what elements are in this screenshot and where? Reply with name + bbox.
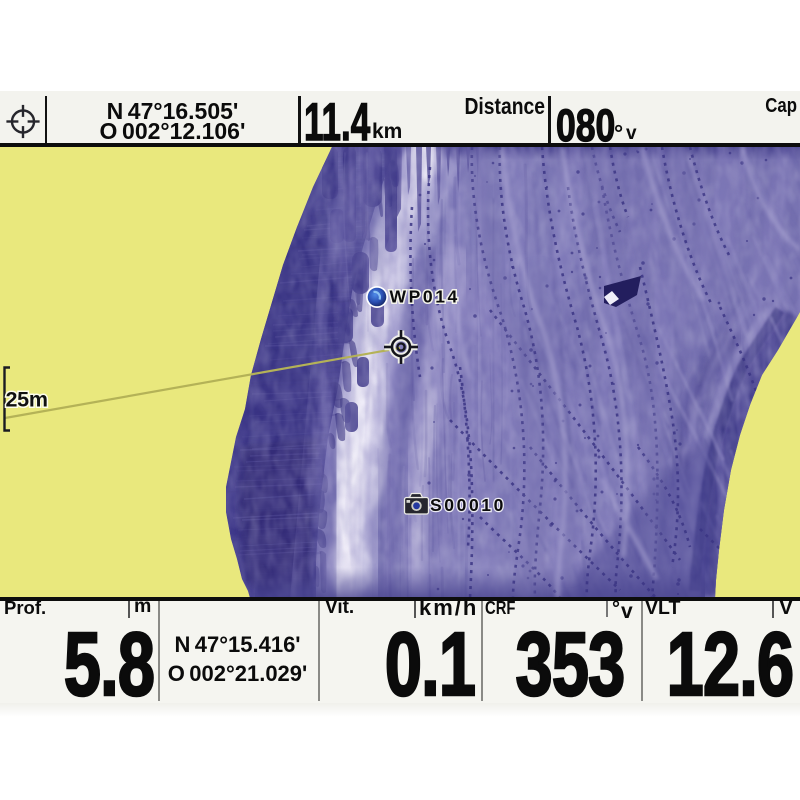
svg-text:WP014: WP014 <box>390 287 460 307</box>
svg-text:S00010: S00010 <box>430 495 506 515</box>
svg-text:25m: 25m <box>6 388 48 412</box>
